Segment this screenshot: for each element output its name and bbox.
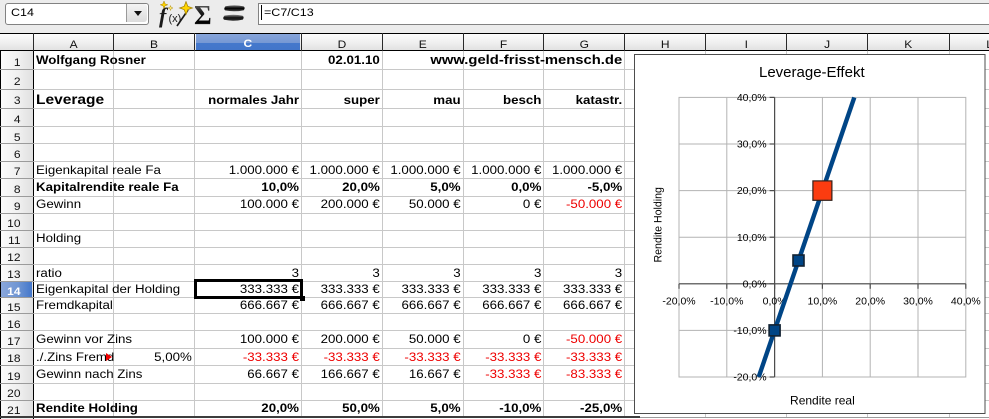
svg-text:10,0%: 10,0% bbox=[737, 231, 767, 243]
svg-text:-20,0%: -20,0% bbox=[662, 295, 695, 307]
svg-text:(x): (x) bbox=[169, 13, 182, 25]
svg-text:Σ: Σ bbox=[194, 1, 212, 28]
svg-text:Rendite Holding: Rendite Holding bbox=[653, 187, 665, 262]
svg-text:40,0%: 40,0% bbox=[737, 92, 767, 104]
svg-text:0,0%: 0,0% bbox=[743, 278, 767, 290]
svg-text:-10,0%: -10,0% bbox=[733, 325, 766, 337]
svg-text:30,0%: 30,0% bbox=[903, 295, 933, 307]
svg-text:Rendite real: Rendite real bbox=[790, 393, 855, 407]
svg-text:40,0%: 40,0% bbox=[951, 295, 981, 307]
svg-text:30,0%: 30,0% bbox=[737, 138, 767, 150]
svg-text:Leverage-Effekt: Leverage-Effekt bbox=[759, 64, 865, 81]
svg-text:-10,0%: -10,0% bbox=[710, 295, 743, 307]
svg-text:20,0%: 20,0% bbox=[737, 185, 767, 197]
svg-text:10,0%: 10,0% bbox=[808, 295, 838, 307]
svg-text:20,0%: 20,0% bbox=[855, 295, 885, 307]
